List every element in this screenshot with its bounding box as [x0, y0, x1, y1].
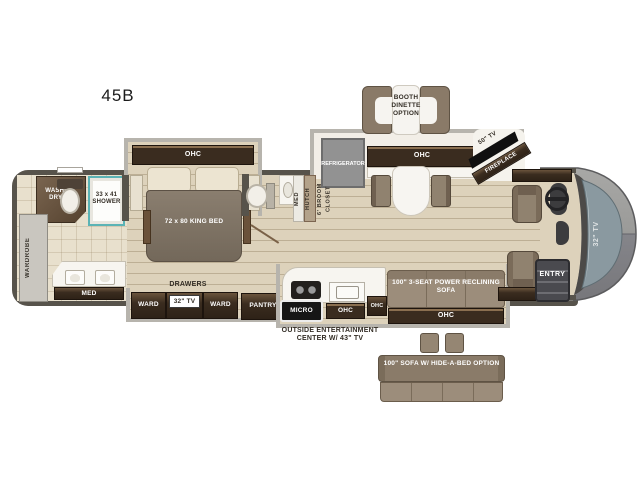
driver-seat [512, 185, 542, 223]
ward-right-label: WARD [203, 301, 238, 309]
galley-ohc-label: OHC [367, 152, 477, 160]
bed-slide-post-left [143, 210, 151, 244]
toilet-rear [60, 188, 80, 214]
king-bed [146, 190, 242, 262]
cooktop [291, 281, 321, 299]
kitchen-sink-basin [336, 286, 359, 299]
entry-steps [535, 259, 570, 302]
microwave-label: MICRO [280, 307, 323, 315]
dinette-table [392, 166, 430, 216]
refrigerator-label: REFRIGERATOR [321, 161, 365, 168]
toilet-mid [246, 184, 268, 208]
vanity-sink-right [95, 270, 115, 285]
mid-bath-med-label: MED [294, 184, 303, 214]
dinette-chair-left [371, 175, 391, 207]
ottoman-left [420, 333, 439, 353]
ward-left-label: WARD [131, 301, 166, 309]
hide-a-bed-sofa-seats [380, 382, 503, 402]
king-bed-label: 72 x 80 KING BED [146, 218, 242, 226]
bedroom-tv-label: 32" TV [169, 298, 200, 306]
floorplan-diagram: 45B OHC 72 x 80 KING BED REFRIGERATOR OH… [0, 0, 640, 480]
bedroom-ohc-label: OHC [132, 151, 254, 159]
vanity-counter [52, 261, 126, 287]
booth-dinette-label: BOOTH DINETTE OPTION [379, 94, 433, 117]
steering-wheel [545, 187, 569, 211]
outside-entertainment-label: OUTSIDE ENTERTAINMENT CENTER W/ 43" TV [270, 327, 390, 344]
shower-label: 33 x 41 SHOWER [89, 192, 124, 206]
sofa-ohc-label: OHC [388, 312, 504, 320]
ottoman-right [445, 333, 464, 353]
dinette-chair-right [431, 175, 451, 207]
reclining-sofa-label: 100" 3-SEAT POWER RECLINING SOFA [392, 279, 500, 295]
wardrobe-label: WARDROBE [25, 222, 41, 294]
entry-side-cabinet [498, 287, 536, 301]
vanity-sink-left [65, 270, 85, 285]
rear-bath-window [57, 167, 83, 173]
front-tv-label: 32" TV [593, 222, 600, 247]
vanity-med-label: MED [54, 290, 124, 298]
kitchen-ohc-side-label: OHC [367, 303, 387, 310]
hutch-label: HUTCH [305, 180, 315, 218]
floorplan-model-title: 45B [94, 86, 142, 106]
dash-top-cabinet [512, 169, 572, 182]
bath-bedroom-wall [122, 175, 129, 221]
kitchen-ohc-label: OHC [326, 307, 365, 315]
broom-closet-label: 6' BROOM CLOSET [316, 177, 334, 221]
kitchen-sink [329, 282, 365, 302]
nightstand-left [130, 175, 143, 211]
mid-bath-sink-basin [283, 182, 293, 198]
center-console [556, 221, 569, 245]
hide-a-bed-label: 100" SOFA W/ HIDE-A-BED OPTION [382, 360, 501, 368]
entry-label: ENTRY [536, 271, 569, 279]
